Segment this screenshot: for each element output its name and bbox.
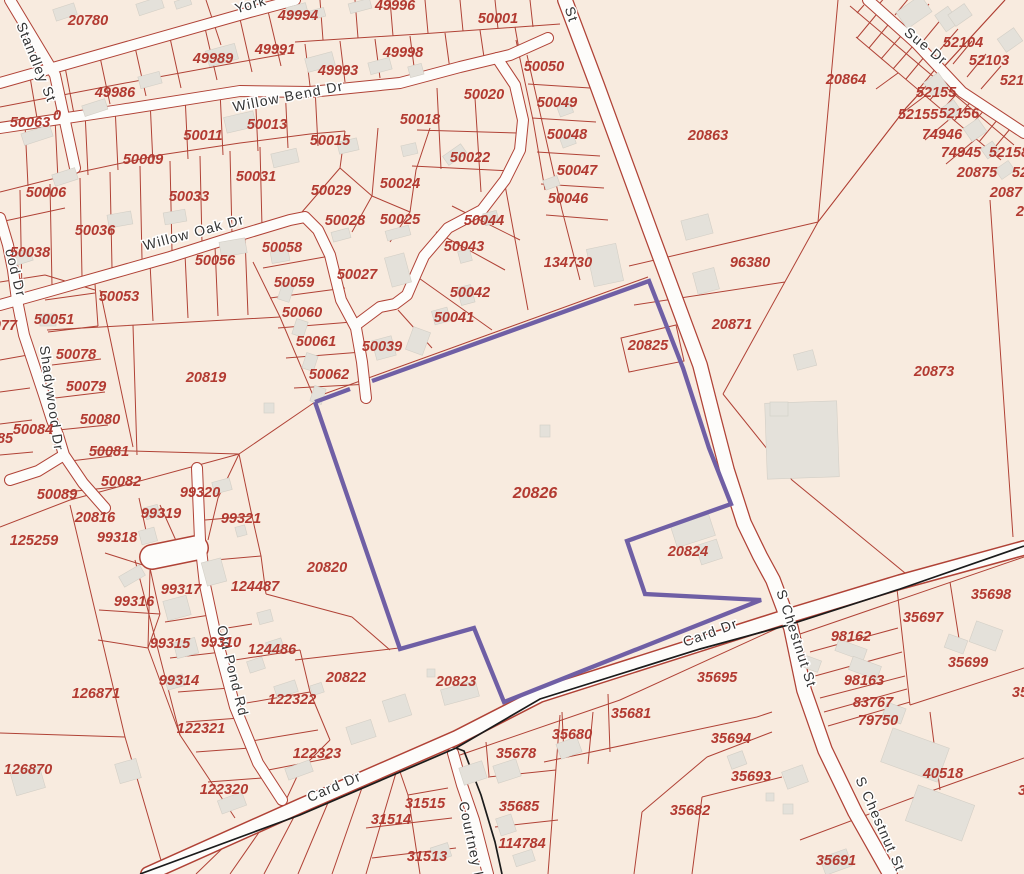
svg-text:99321: 99321 [221,511,261,527]
svg-text:49989: 49989 [192,51,233,67]
svg-text:35681: 35681 [611,706,651,722]
svg-text:35685: 35685 [499,799,540,815]
svg-text:50022: 50022 [450,150,490,166]
svg-text:50050: 50050 [524,59,564,75]
svg-text:35678: 35678 [496,746,537,762]
svg-text:50001: 50001 [478,11,518,27]
svg-text:50049: 50049 [537,95,577,111]
svg-text:50061: 50061 [296,334,336,350]
svg-text:35694: 35694 [711,731,751,747]
svg-text:50041: 50041 [434,310,474,326]
svg-text:50011: 50011 [183,128,222,144]
svg-text:52158: 52158 [989,145,1024,161]
svg-text:50044: 50044 [464,213,504,229]
svg-text:35693: 35693 [731,769,771,785]
svg-text:122320: 122320 [200,782,248,798]
svg-text:31515: 31515 [405,796,446,812]
svg-text:077: 077 [0,318,18,334]
svg-text:52155: 52155 [916,85,957,101]
svg-text:74946: 74946 [922,127,963,143]
svg-text:50082: 50082 [101,474,141,490]
svg-text:20780: 20780 [67,13,108,29]
svg-text:50036: 50036 [75,223,116,239]
svg-text:50015: 50015 [310,133,351,149]
svg-text:50048: 50048 [547,127,588,143]
svg-text:52104: 52104 [943,35,983,51]
svg-text:49991: 49991 [254,42,295,58]
svg-text:35: 35 [1012,685,1024,701]
svg-text:50024: 50024 [380,176,420,192]
svg-text:50006: 50006 [26,185,67,201]
svg-text:50039: 50039 [362,339,402,355]
svg-text:35698: 35698 [971,587,1012,603]
svg-text:50038: 50038 [10,245,51,261]
svg-text:20820: 20820 [306,560,347,576]
svg-text:50079: 50079 [66,379,106,395]
svg-text:35697: 35697 [903,610,944,626]
svg-text:40518: 40518 [922,766,964,782]
svg-text:35695: 35695 [697,670,738,686]
svg-text:5210: 5210 [1000,73,1024,89]
svg-text:50027: 50027 [337,267,378,283]
svg-text:50051: 50051 [34,312,74,328]
svg-text:49998: 49998 [382,45,424,61]
svg-text:20863: 20863 [687,128,728,144]
svg-text:98163: 98163 [844,673,884,689]
svg-text:35699: 35699 [948,655,988,671]
svg-text:20823: 20823 [435,674,476,690]
svg-text:20873: 20873 [913,364,954,380]
svg-text:50084: 50084 [13,422,53,438]
svg-text:124487: 124487 [231,579,280,595]
svg-text:49996: 49996 [374,0,416,14]
svg-text:35680: 35680 [552,727,592,743]
svg-text:0: 0 [53,108,61,124]
svg-text:99317: 99317 [161,582,202,598]
svg-text:99319: 99319 [141,506,181,522]
svg-text:50025: 50025 [380,212,421,228]
svg-text:49986: 49986 [94,85,136,101]
svg-text:125259: 125259 [10,533,58,549]
svg-text:52: 52 [1012,165,1024,181]
svg-text:50033: 50033 [169,189,209,205]
svg-text:49993: 49993 [317,63,358,79]
svg-text:20826: 20826 [512,485,558,502]
svg-text:114784: 114784 [498,836,545,852]
svg-text:20824: 20824 [667,544,708,560]
svg-text:52103: 52103 [969,53,1009,69]
svg-text:126870: 126870 [4,762,52,778]
svg-text:124486: 124486 [248,642,297,658]
svg-text:50047: 50047 [557,163,598,179]
svg-text:99310: 99310 [201,635,241,651]
svg-text:98162: 98162 [831,629,871,645]
svg-text:20825: 20825 [627,338,669,354]
svg-text:50078: 50078 [56,347,97,363]
svg-text:20819: 20819 [185,370,226,386]
svg-text:74945: 74945 [941,145,982,161]
svg-text:35682: 35682 [670,803,710,819]
svg-text:99318: 99318 [97,530,138,546]
svg-text:50081: 50081 [89,444,129,460]
svg-text:50020: 50020 [464,87,504,103]
svg-text:20871: 20871 [711,317,752,333]
svg-text:83767: 83767 [853,695,894,711]
svg-text:50028: 50028 [325,213,366,229]
svg-text:99315: 99315 [150,636,191,652]
svg-text:50056: 50056 [195,253,236,269]
svg-text:50018: 50018 [400,112,441,128]
svg-text:50058: 50058 [262,240,303,256]
svg-text:50043: 50043 [444,239,484,255]
svg-text:122322: 122322 [268,692,316,708]
svg-text:50053: 50053 [99,289,139,305]
svg-text:79750: 79750 [858,713,898,729]
svg-text:50013: 50013 [247,117,287,133]
svg-text:31513: 31513 [407,849,447,865]
svg-text:122323: 122323 [293,746,341,762]
svg-text:50046: 50046 [548,191,589,207]
svg-text:31514: 31514 [371,812,411,828]
svg-text:50009: 50009 [123,152,163,168]
svg-text:20875: 20875 [956,165,998,181]
svg-text:50060: 50060 [282,305,322,321]
svg-text:50089: 50089 [37,487,77,503]
svg-text:99316: 99316 [114,594,155,610]
svg-text:50062: 50062 [309,367,349,383]
svg-text:52155: 52155 [898,107,939,123]
svg-text:50080: 50080 [80,412,120,428]
svg-text:2087: 2087 [989,185,1023,201]
svg-text:2: 2 [1015,204,1024,220]
svg-text:50063: 50063 [10,115,50,131]
svg-text:50031: 50031 [236,169,276,185]
svg-text:50042: 50042 [450,285,490,301]
svg-text:50029: 50029 [311,183,351,199]
svg-text:122321: 122321 [177,721,225,737]
svg-text:96380: 96380 [730,255,770,271]
svg-text:20822: 20822 [325,670,366,686]
svg-text:20816: 20816 [74,510,116,526]
svg-text:35691: 35691 [816,853,856,869]
svg-text:99320: 99320 [180,485,220,501]
svg-text:134730: 134730 [544,255,592,271]
svg-text:49994: 49994 [277,8,318,24]
svg-text:99314: 99314 [159,673,199,689]
svg-text:20864: 20864 [825,72,866,88]
svg-text:126871: 126871 [72,686,120,702]
svg-text:3: 3 [1018,783,1024,799]
svg-text:50059: 50059 [274,275,314,291]
svg-text:85: 85 [0,431,14,447]
svg-text:52156: 52156 [939,106,980,122]
